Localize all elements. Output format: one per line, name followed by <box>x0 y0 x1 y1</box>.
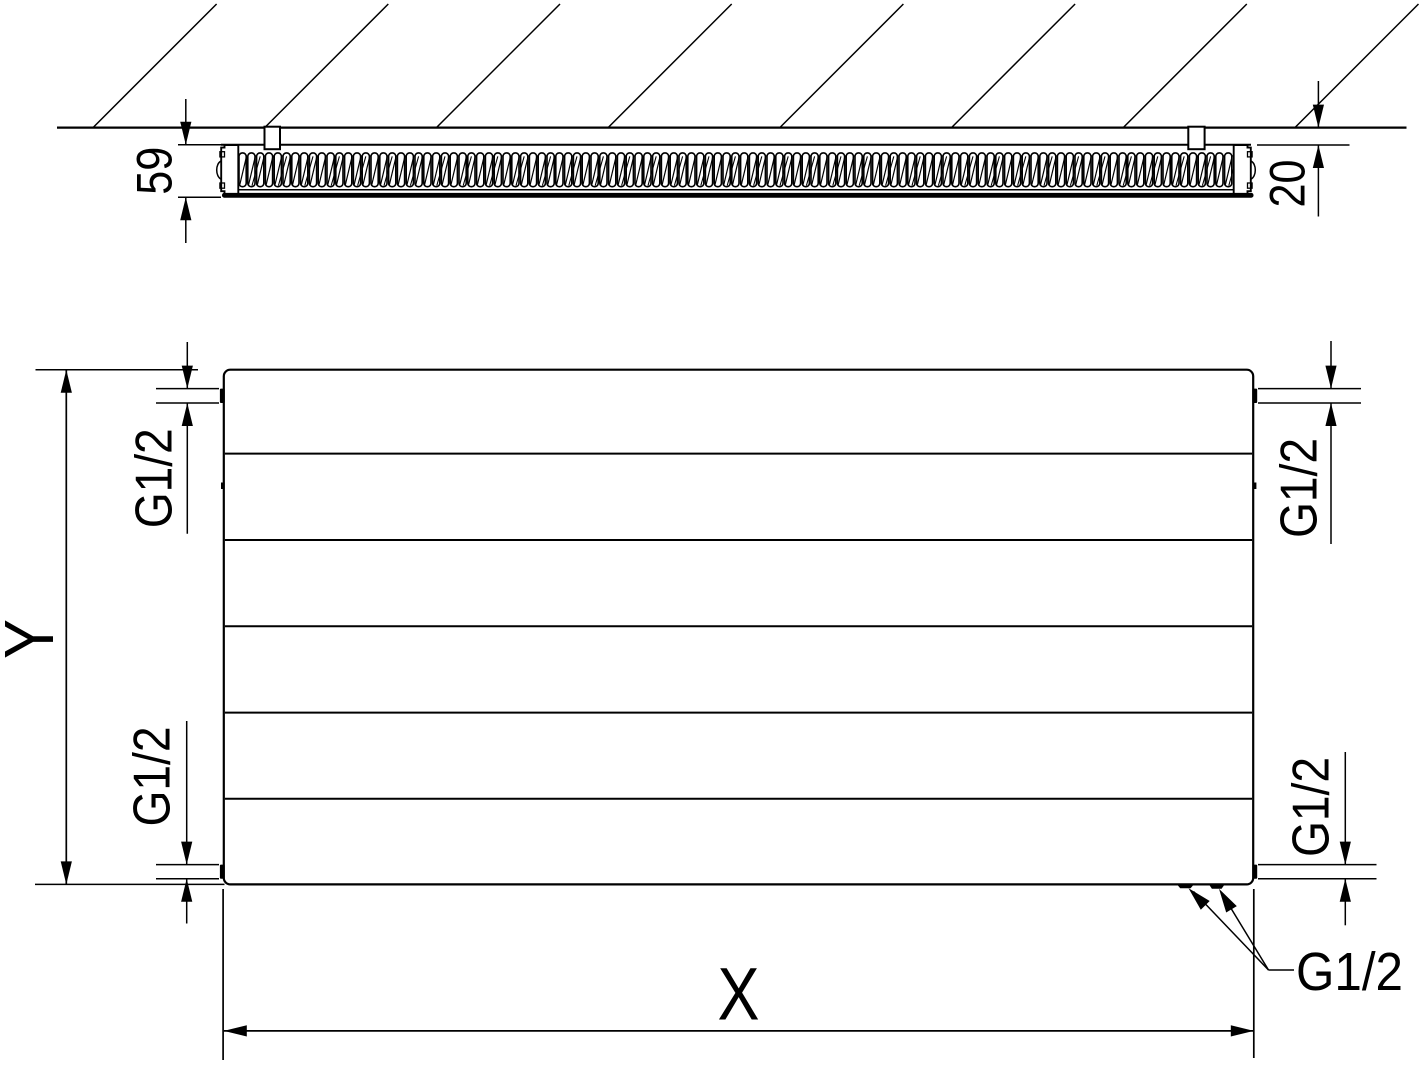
svg-text:G1/2: G1/2 <box>1283 757 1341 857</box>
svg-text:Y: Y <box>0 619 68 659</box>
svg-text:G1/2: G1/2 <box>124 727 182 827</box>
svg-text:59: 59 <box>126 147 182 195</box>
svg-text:X: X <box>718 953 760 1036</box>
svg-text:G1/2: G1/2 <box>126 428 184 528</box>
svg-text:20: 20 <box>1259 160 1315 208</box>
svg-text:G1/2: G1/2 <box>1271 438 1329 538</box>
svg-text:G1/2: G1/2 <box>1296 942 1403 1002</box>
